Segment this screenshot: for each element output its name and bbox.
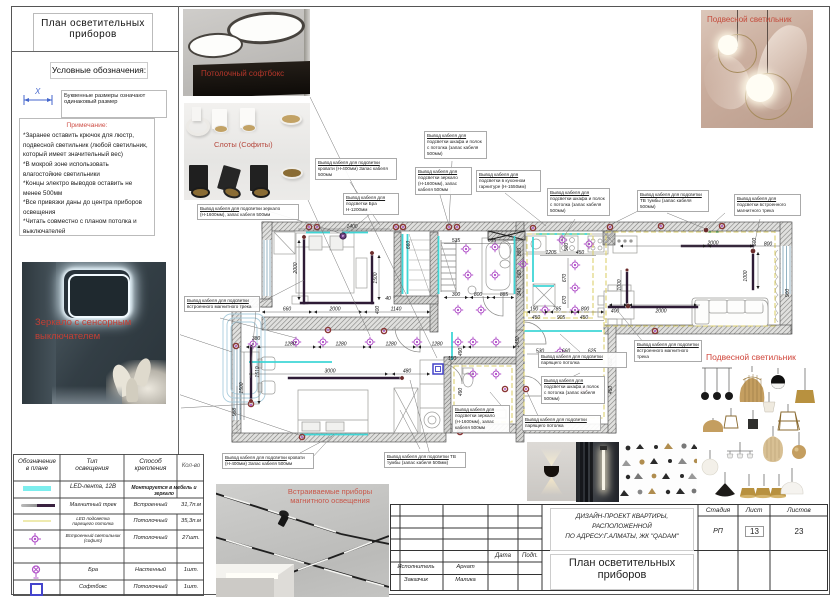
svg-text:885: 885	[500, 292, 509, 298]
svg-text:2000: 2000	[654, 309, 666, 315]
svg-text:1000: 1000	[743, 270, 749, 281]
svg-text:2000: 2000	[706, 241, 718, 247]
svg-text:2000: 2000	[293, 262, 299, 274]
svg-text:900: 900	[785, 289, 791, 298]
svg-text:560: 560	[517, 270, 523, 279]
svg-text:670: 670	[562, 274, 568, 283]
svg-text:1280: 1280	[385, 342, 396, 348]
svg-text:880: 880	[517, 248, 523, 257]
svg-text:450: 450	[580, 315, 589, 321]
svg-text:1000: 1000	[617, 279, 623, 290]
svg-text:3000: 3000	[324, 369, 335, 375]
svg-text:695: 695	[488, 238, 497, 244]
svg-text:345: 345	[517, 288, 523, 297]
svg-text:800: 800	[764, 242, 773, 248]
svg-text:800: 800	[581, 307, 590, 313]
svg-text:660: 660	[283, 307, 292, 313]
svg-text:535: 535	[452, 238, 461, 244]
svg-text:490: 490	[458, 348, 464, 357]
svg-text:1430: 1430	[515, 336, 521, 347]
svg-text:900: 900	[564, 243, 570, 252]
svg-text:1280: 1280	[431, 342, 442, 348]
svg-text:400: 400	[375, 306, 381, 315]
svg-text:150: 150	[448, 356, 457, 362]
svg-text:40: 40	[385, 296, 391, 302]
svg-text:490: 490	[458, 388, 464, 397]
svg-text:190: 190	[530, 307, 539, 313]
svg-text:1205: 1205	[545, 250, 556, 256]
svg-text:1280: 1280	[284, 342, 295, 348]
svg-text:670: 670	[562, 296, 568, 305]
svg-text:2000: 2000	[328, 307, 340, 313]
svg-text:660: 660	[406, 241, 412, 250]
svg-text:300: 300	[452, 292, 461, 298]
svg-text:450: 450	[608, 386, 614, 395]
svg-text:785: 785	[553, 307, 562, 313]
svg-text:800: 800	[474, 292, 483, 298]
svg-text:1280: 1280	[335, 342, 346, 348]
svg-text:450: 450	[576, 250, 585, 256]
svg-text:1510: 1510	[255, 366, 261, 377]
svg-text:1500: 1500	[373, 272, 379, 283]
svg-text:480: 480	[403, 369, 412, 375]
svg-text:1140: 1140	[391, 307, 402, 313]
svg-text:905: 905	[557, 315, 566, 321]
svg-text:X: X	[34, 87, 41, 96]
svg-text:450: 450	[532, 315, 541, 321]
